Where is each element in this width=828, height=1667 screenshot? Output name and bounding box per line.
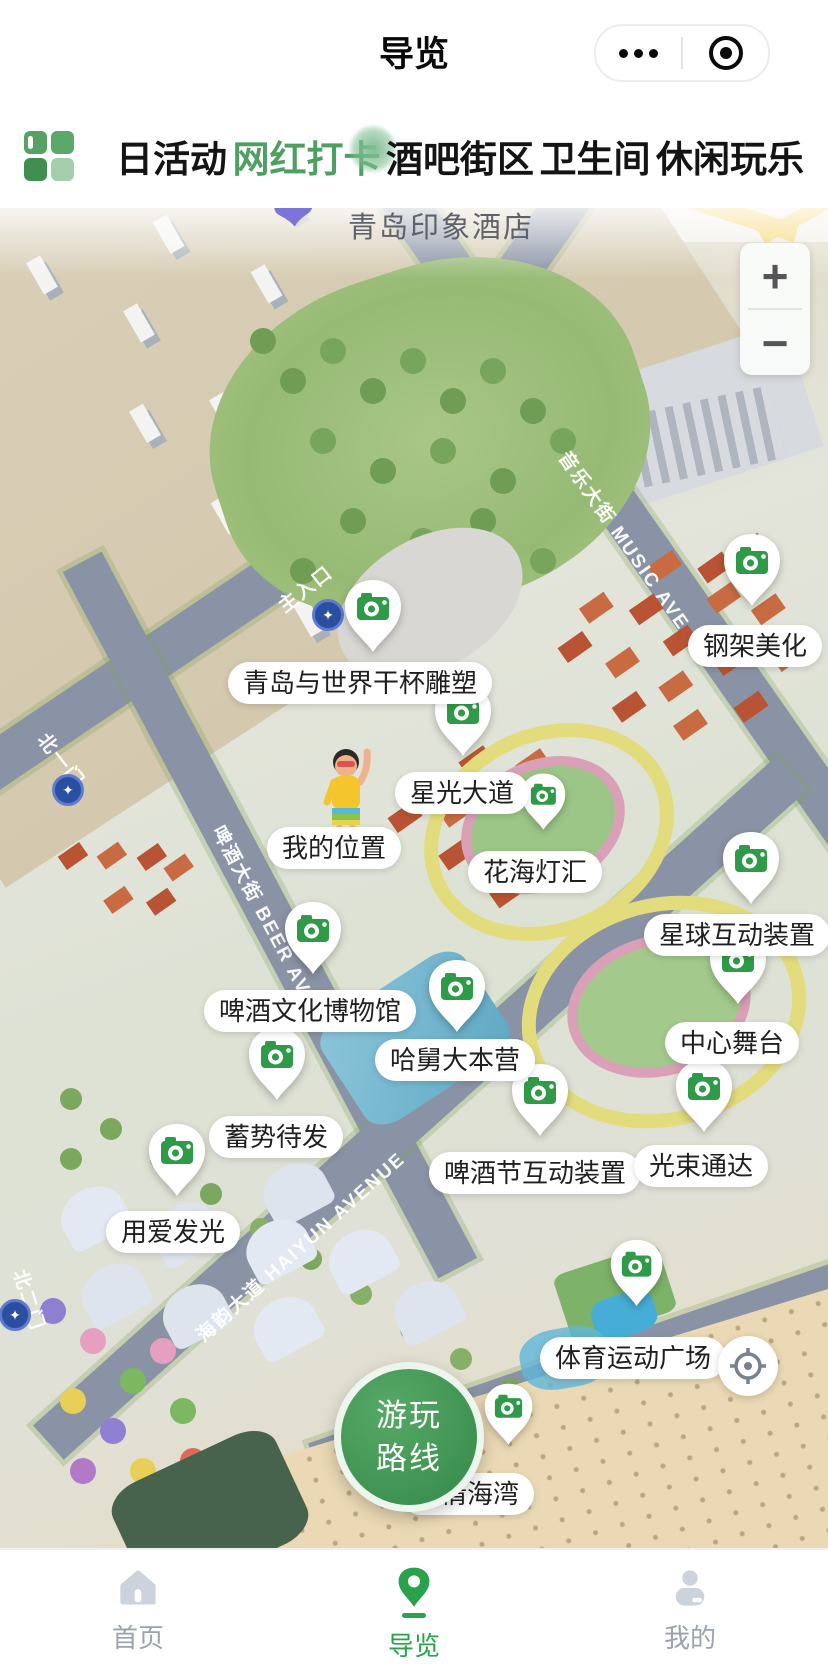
- camera-icon: [722, 532, 782, 608]
- more-dots-icon: [619, 49, 658, 58]
- grid-cell: [24, 158, 47, 181]
- hotel-label: 青岛印象酒店: [348, 208, 534, 246]
- grid-cell: [51, 158, 74, 181]
- user-icon: [668, 1562, 712, 1610]
- category-tab-3[interactable]: 酒吧街区: [386, 129, 534, 183]
- poi-label[interactable]: 哈舅大本营: [375, 1039, 535, 1081]
- route-button-line2: 路线: [376, 1437, 442, 1480]
- camera-icon: [609, 1238, 664, 1308]
- active-nav-underline: [402, 1613, 426, 1618]
- nav-label: 导览: [388, 1626, 440, 1663]
- wechat-capsule: [594, 24, 770, 82]
- camera-icon: [247, 1026, 307, 1102]
- nav-item-1[interactable]: 首页: [0, 1550, 276, 1667]
- camera-pin[interactable]: [427, 958, 487, 1034]
- camera-pin[interactable]: [722, 532, 782, 608]
- poi-label[interactable]: 花海灯汇: [468, 851, 602, 893]
- category-grid-icon[interactable]: [24, 131, 74, 181]
- locate-button[interactable]: [718, 1336, 778, 1396]
- category-bar: 日活动网红打卡酒吧街区卫生间休闲玩乐: [0, 104, 828, 208]
- poi-label[interactable]: 体育运动广场: [540, 1337, 726, 1379]
- category-tab-1[interactable]: 日活动: [116, 129, 227, 183]
- map-art-trees: [60, 1088, 82, 1110]
- camera-icon: [427, 958, 487, 1034]
- nav-item-2[interactable]: 导览: [276, 1550, 552, 1667]
- camera-icon: [283, 900, 343, 976]
- camera-icon: [674, 1058, 734, 1134]
- zoom-in-button[interactable]: +: [740, 243, 810, 308]
- poi-label[interactable]: 我的位置: [267, 827, 401, 869]
- camera-pin[interactable]: [147, 1122, 207, 1198]
- poi-label[interactable]: 用爱发光: [106, 1211, 240, 1253]
- category-tab-5[interactable]: 休闲玩乐: [656, 129, 804, 183]
- more-button[interactable]: [596, 26, 681, 80]
- location-pin-icon: [392, 1562, 436, 1610]
- camera-icon: [483, 1382, 534, 1447]
- camera-icon: [147, 1122, 207, 1198]
- camera-pin[interactable]: [483, 1382, 534, 1447]
- camera-pin[interactable]: [721, 830, 781, 906]
- category-tab-2[interactable]: 网红打卡: [233, 129, 381, 183]
- gate-marker-icon: ✦: [52, 774, 84, 806]
- nav-label: 我的: [664, 1618, 716, 1655]
- camera-icon: [343, 578, 403, 654]
- route-button-line1: 游玩: [376, 1394, 442, 1437]
- exit-button[interactable]: [683, 26, 768, 80]
- camera-pin[interactable]: [283, 900, 343, 976]
- target-circle-icon: [709, 36, 743, 70]
- camera-icon: [721, 830, 781, 906]
- map-art-trees: [250, 328, 276, 354]
- map-zoom-control: + −: [740, 243, 810, 375]
- map-art-stage: [103, 1421, 317, 1548]
- poi-label[interactable]: 中心舞台: [665, 1022, 799, 1064]
- category-tabs: 日活动网红打卡酒吧街区卫生间休闲玩乐: [116, 129, 804, 183]
- nav-label: 首页: [112, 1618, 164, 1655]
- poi-label[interactable]: 啤酒节互动装置: [429, 1152, 641, 1194]
- camera-pin[interactable]: [609, 1238, 664, 1308]
- gate-marker-icon: ✦: [312, 599, 344, 631]
- header: 导览: [0, 0, 828, 104]
- zoom-out-button[interactable]: −: [740, 310, 810, 375]
- route-button[interactable]: 游玩 路线: [334, 1362, 484, 1512]
- gate-marker-icon: ✦: [0, 1299, 31, 1331]
- poi-label[interactable]: 星光大道: [395, 772, 529, 814]
- grid-cell: [24, 131, 47, 154]
- locate-compass-icon: [728, 1346, 768, 1386]
- poi-label[interactable]: 青岛与世界干杯雕塑: [228, 662, 492, 704]
- home-icon: [116, 1562, 160, 1610]
- camera-pin[interactable]: [247, 1026, 307, 1102]
- grid-cell: [51, 131, 74, 154]
- poi-label[interactable]: 蓄势待发: [209, 1116, 343, 1158]
- category-tab-4[interactable]: 卫生间: [540, 129, 651, 183]
- camera-pin[interactable]: [674, 1058, 734, 1134]
- bottom-nav: 首页导览我的: [0, 1548, 828, 1667]
- map-art-red-buildings: [558, 631, 593, 663]
- poi-label[interactable]: 钢架美化: [688, 625, 822, 667]
- poi-label[interactable]: 光束通达: [634, 1145, 768, 1187]
- poi-label[interactable]: 星球互动装置: [644, 914, 828, 956]
- heart-pin-icon[interactable]: ❤: [270, 208, 318, 245]
- nav-item-3[interactable]: 我的: [552, 1550, 828, 1667]
- mini-program-screen: 导览 日活动网红打卡酒吧街区卫生间休闲玩乐: [0, 0, 828, 1667]
- camera-pin[interactable]: [343, 578, 403, 654]
- poi-label[interactable]: 啤酒文化博物馆: [204, 990, 416, 1032]
